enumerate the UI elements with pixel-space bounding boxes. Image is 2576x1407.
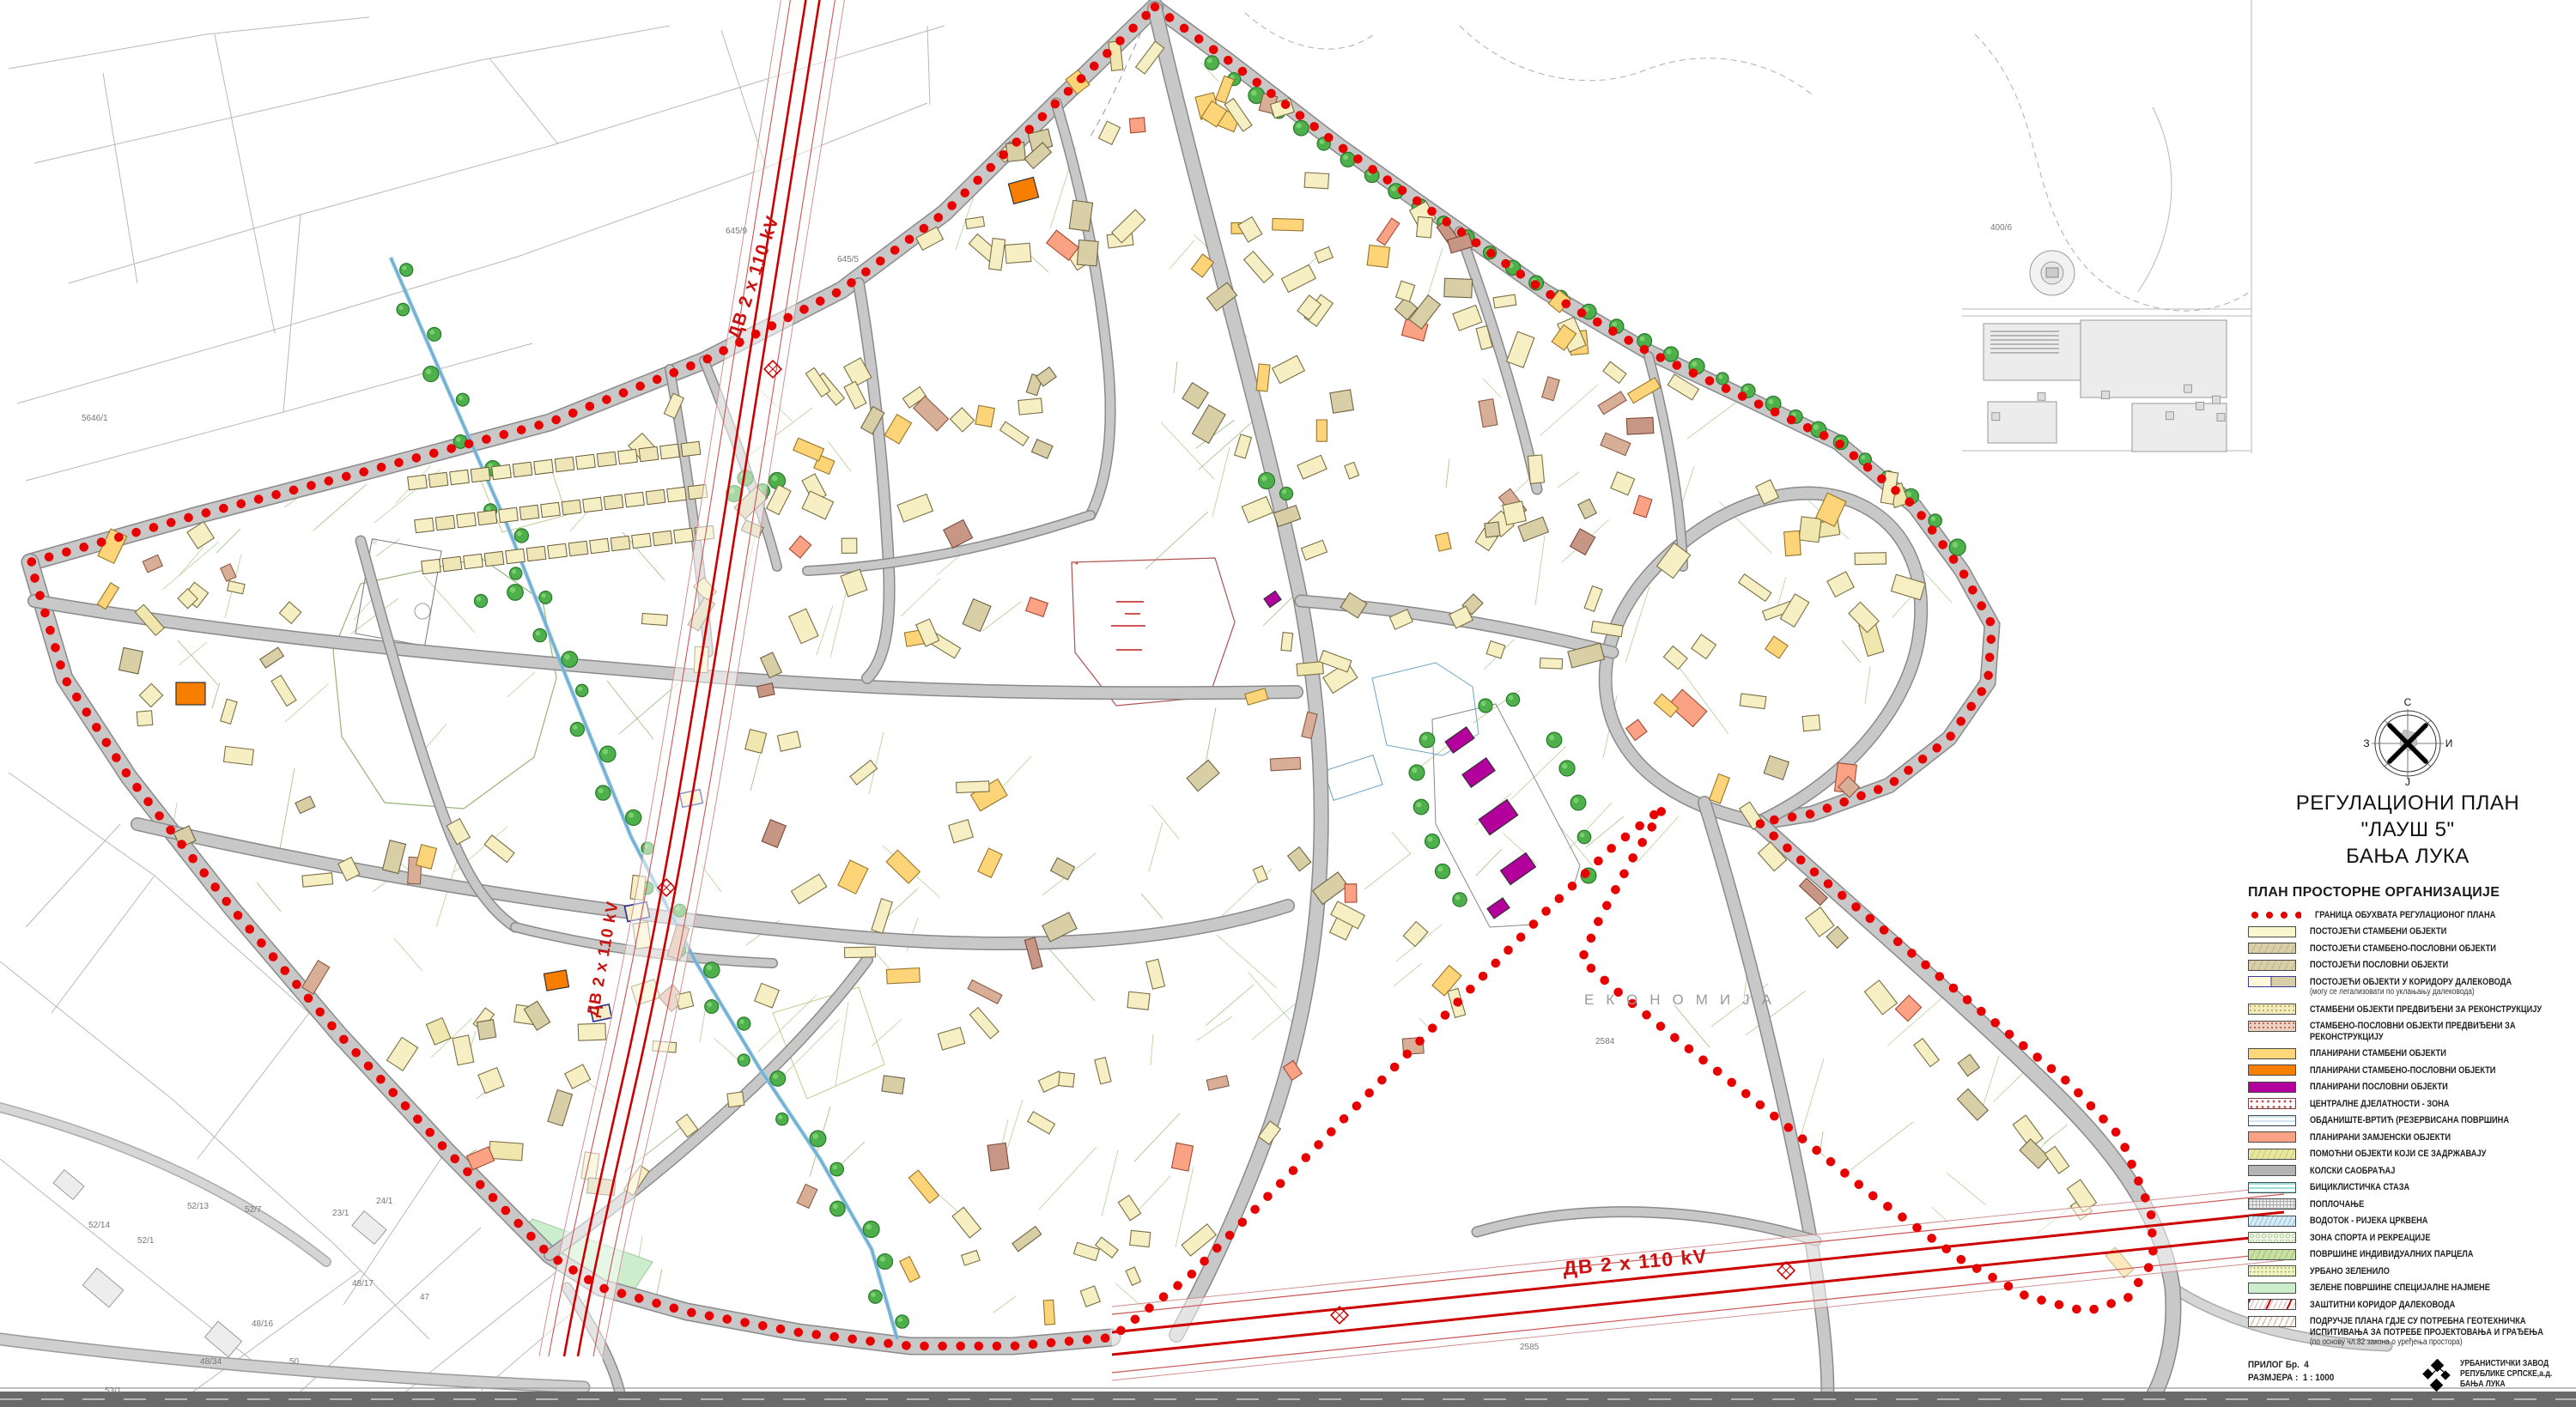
- legend-swatch-cream: [2248, 926, 2296, 937]
- parcel-number: 400/6: [1990, 223, 2012, 233]
- legend-swatch-aux: [2248, 1149, 2296, 1160]
- legend-label: ГРАНИЦА ОБУХВАТА РЕГУЛАЦИОНОГ ПЛАНА: [2315, 910, 2495, 921]
- parcel-number: 48/34: [200, 1357, 222, 1367]
- compass-south-label: Ј: [2405, 776, 2410, 786]
- legend-label: БИЦИКЛИСТИЧКА СТАЗА: [2310, 1182, 2409, 1193]
- legend-label: СТАМБЕНО-ПОСЛОВНИ ОБЈЕКТИ ПРЕДВИЂЕНИ ЗАР…: [2310, 1021, 2516, 1042]
- legend-swatch-boundary: [2248, 911, 2301, 919]
- legend-swatch-road: [2248, 1165, 2296, 1176]
- legend-swatch-urban: [2248, 1265, 2296, 1277]
- legend-label: ВОДОТОК - РИЈЕКА ЦРКВЕНА: [2310, 1216, 2427, 1227]
- parcel-number: 645/5: [837, 255, 859, 264]
- legend-item-9: ПЛАНИРАНИ ПОСЛОВНИ ОБЈЕКТИ: [2248, 1082, 2567, 1093]
- legend-swatch-sport: [2248, 1232, 2296, 1243]
- parcel-number: 23/1: [332, 1209, 349, 1218]
- legend-item-18: ЗОНА СПОРТА И РЕКРЕАЦИЈЕ: [2248, 1232, 2567, 1243]
- legend-label: СТАМБЕНИ ОБЈЕКТИ ПРЕДВИЂЕНИ ЗА РЕКОНСТРУ…: [2310, 1004, 2542, 1016]
- legend-item-11: ОБДАНИШТЕ-ВРТИЋ (РЕЗЕРВИСАНА ПОВРШИНА: [2248, 1115, 2567, 1126]
- compass-north-label: С: [2404, 697, 2412, 708]
- legend-item-5: СТАМБЕНИ ОБЈЕКТИ ПРЕДВИЂЕНИ ЗА РЕКОНСТРУ…: [2248, 1004, 2567, 1015]
- legend-label: ПОСТОЈЕЋИ ПОСЛОВНИ ОБЈЕКТИ: [2310, 960, 2448, 971]
- parcel-number: 52/1: [137, 1236, 155, 1246]
- legend-label: ЗАШТИТНИ КОРИДОР ДАЛЕКОВОДА: [2310, 1300, 2455, 1311]
- legend-swatch-tanhatch: [2248, 960, 2296, 971]
- legend-item-3: ПОСТОЈЕЋИ ПОСЛОВНИ ОБЈЕКТИ: [2248, 960, 2567, 971]
- legend-label: ПОСТОЈЕЋИ СТАМБЕНИ ОБЈЕКТИ: [2310, 926, 2446, 937]
- legend-label: ПОДРУЧЈЕ ПЛАНА ГДЈЕ СУ ПОТРЕБНА ГЕОТЕХНИ…: [2310, 1316, 2543, 1349]
- legend-item-15: БИЦИКЛИСТИЧКА СТАЗА: [2248, 1182, 2567, 1193]
- economija-label: ЕКОНОМИЈА: [1584, 992, 1783, 1008]
- plan-title-line1: РЕГУЛАЦИОНИ ПЛАН: [2248, 790, 2567, 816]
- legend-swatch-central: [2248, 1098, 2296, 1109]
- legend-swatch-parcel: [2248, 1249, 2296, 1260]
- legend-label: ПОМОЋНИ ОБЈЕКТИ КОЈИ СЕ ЗАДРЖАВАЈУ: [2310, 1149, 2486, 1160]
- legend-swatch-pave: [2248, 1198, 2296, 1210]
- legend-swatch-mint: [2248, 1283, 2296, 1294]
- map-footer: ПРИЛОГ Бр. 4 РАЗМЈЕРА : 1 : 1000 УРБАНИС…: [2248, 1359, 2567, 1393]
- parcel-number: 48/16: [252, 1319, 273, 1329]
- plan-map: ДВ 2 x 110 kVДВ 2 x 110 kVДВ 2 x 110 kVЕ…: [0, 0, 2576, 1407]
- legend-label: ПЛАНИРАНИ СТАМБЕНИ ОБЈЕКТИ: [2310, 1048, 2446, 1059]
- plan-map-svg: ДВ 2 x 110 kVДВ 2 x 110 kVДВ 2 x 110 kVЕ…: [0, 0, 2576, 1407]
- legend-item-0: ГРАНИЦА ОБУХВАТА РЕГУЛАЦИОНОГ ПЛАНА: [2248, 909, 2567, 920]
- plan-title-line3: БАЊА ЛУКА: [2248, 843, 2567, 870]
- compass-rose: С Ј З И: [2363, 697, 2452, 786]
- legend-item-20: УРБАНО ЗЕЛЕНИЛО: [2248, 1265, 2567, 1277]
- legend-swatch-tanhatch: [2248, 943, 2296, 954]
- parcel-number: 53/1: [105, 1386, 122, 1396]
- legend-swatch-water: [2248, 1216, 2296, 1227]
- legend-swatch-reconmix: [2248, 1021, 2296, 1032]
- legend-swatch-reconres: [2248, 1004, 2296, 1015]
- parcel-number: 645/9: [726, 227, 747, 236]
- legend-item-16: ПОПЛОЧАЊЕ: [2248, 1198, 2567, 1210]
- legend-item-22: ЗАШТИТНИ КОРИДОР ДАЛЕКОВОДА: [2248, 1299, 2567, 1310]
- legend-label: ПЛАНИРАНИ СТАМБЕНО-ПОСЛОВНИ ОБЈЕКТИ: [2310, 1065, 2495, 1076]
- legend-swatch-dvcorr: [2248, 1299, 2296, 1310]
- legend-heading: ПЛАН ПРОСТОРНЕ ОРГАНИЗАЦИЈЕ: [2248, 885, 2567, 901]
- parcel-number: 2585: [1520, 1343, 1540, 1352]
- parcel-number: 52/14: [88, 1221, 110, 1230]
- legend-label: ПЛАНИРАНИ ЗАМЈЕНСКИ ОБЈЕКТИ: [2310, 1132, 2451, 1143]
- legend-label: ОБДАНИШТЕ-ВРТИЋ (РЕЗЕРВИСАНА ПОВРШИНА: [2310, 1115, 2509, 1126]
- legend-label: КОЛСКИ САОБРАЋАЈ: [2310, 1166, 2395, 1177]
- legend-swatch-salmon: [2248, 1131, 2296, 1143]
- footer-organization: УРБАНИСТИЧКИ ЗАВОД РЕПУБЛИКЕ СРПСКЕ,а.д.…: [2460, 1359, 2552, 1390]
- legend-item-21: ЗЕЛЕНЕ ПОВРШИНЕ СПЕЦИЈАЛНЕ НАЈМЕНЕ: [2248, 1283, 2567, 1294]
- legend-item-8: ПЛАНИРАНИ СТАМБЕНО-ПОСЛОВНИ ОБЈЕКТИ: [2248, 1064, 2567, 1076]
- legend-swatch-magenta: [2248, 1082, 2296, 1093]
- legend-item-17: ВОДОТОК - РИЈЕКА ЦРКВЕНА: [2248, 1216, 2567, 1227]
- uzrs-logo-icon: [2421, 1359, 2453, 1393]
- legend-label: УРБАНО ЗЕЛЕНИЛО: [2310, 1266, 2390, 1277]
- legend-label: ЗЕЛЕНЕ ПОВРШИНЕ СПЕЦИЈАЛНЕ НАЈМЕНЕ: [2310, 1283, 2490, 1294]
- parcel-number: 5646/1: [82, 414, 108, 423]
- legend-item-2: ПОСТОЈЕЋИ СТАМБЕНО-ПОСЛОВНИ ОБЈЕКТИ: [2248, 943, 2567, 954]
- legend-item-6: СТАМБЕНО-ПОСЛОВНИ ОБЈЕКТИ ПРЕДВИЂЕНИ ЗАР…: [2248, 1021, 2567, 1043]
- plan-title-line2: "ЛАУШ 5": [2248, 816, 2567, 843]
- legend-item-10: ЦЕНТРАЛНЕ ДЈЕЛАТНОСТИ - ЗОНА: [2248, 1098, 2567, 1109]
- legend: ГРАНИЦА ОБУХВАТА РЕГУЛАЦИОНОГ ПЛАНАПОСТО…: [2248, 909, 2567, 1349]
- compass-west-label: З: [2363, 737, 2369, 749]
- legend-label: ПОСТОЈЕЋИ СТАМБЕНО-ПОСЛОВНИ ОБЈЕКТИ: [2310, 943, 2496, 955]
- parcel-number: 48/17: [352, 1279, 374, 1289]
- legend-item-13: ПОМОЋНИ ОБЈЕКТИ КОЈИ СЕ ЗАДРЖАВАЈУ: [2248, 1149, 2567, 1160]
- title-block: С Ј З И РЕГУЛАЦИОНИ ПЛАН "ЛАУШ 5" БАЊА Л…: [2248, 697, 2567, 1393]
- legend-item-19: ПОВРШИНЕ ИНДИВИДУАЛНИХ ПАРЦЕЛА: [2248, 1249, 2567, 1260]
- legend-item-7: ПЛАНИРАНИ СТАМБЕНИ ОБЈЕКТИ: [2248, 1048, 2567, 1059]
- parcel-number: 24/1: [376, 1197, 393, 1206]
- legend-swatch-geo: [2248, 1316, 2296, 1327]
- legend-item-1: ПОСТОЈЕЋИ СТАМБЕНИ ОБЈЕКТИ: [2248, 926, 2567, 937]
- legend-label: ЗОНА СПОРТА И РЕКРЕАЦИЈЕ: [2310, 1233, 2430, 1244]
- parcel-number: 52/13: [187, 1202, 209, 1211]
- parcel-number: 50: [289, 1357, 300, 1367]
- legend-label: ПЛАНИРАНИ ПОСЛОВНИ ОБЈЕКТИ: [2310, 1082, 2448, 1093]
- parcel-number: 47: [420, 1293, 430, 1302]
- legend-label: ЦЕНТРАЛНЕ ДЈЕЛАТНОСТИ - ЗОНА: [2310, 1099, 2449, 1110]
- legend-item-4: ПОСТОЈЕЋИ ОБЈЕКТИ У КОРИДОРУ ДАЛЕКОВОДА(…: [2248, 976, 2567, 998]
- legend-label: ПОВРШИНЕ ИНДИВИДУАЛНИХ ПАРЦЕЛА: [2310, 1249, 2473, 1260]
- legend-item-23: ПОДРУЧЈЕ ПЛАНА ГДЈЕ СУ ПОТРЕБНА ГЕОТЕХНИ…: [2248, 1316, 2567, 1349]
- parcel-number: 2584: [1595, 1037, 1615, 1046]
- legend-swatch-orange: [2248, 1064, 2296, 1076]
- legend-swatch-corridorsplit: [2248, 976, 2296, 987]
- legend-swatch-gold: [2248, 1048, 2296, 1059]
- legend-item-12: ПЛАНИРАНИ ЗАМЈЕНСКИ ОБЈЕКТИ: [2248, 1131, 2567, 1143]
- legend-swatch-bike: [2248, 1182, 2296, 1193]
- legend-label: ПОСТОЈЕЋИ ОБЈЕКТИ У КОРИДОРУ ДАЛЕКОВОДА(…: [2310, 977, 2512, 998]
- legend-label: ПОПЛОЧАЊЕ: [2310, 1199, 2364, 1210]
- legend-item-14: КОЛСКИ САОБРАЋАЈ: [2248, 1165, 2567, 1176]
- legend-swatch-kinder: [2248, 1115, 2296, 1126]
- footer-attachment-scale: ПРИЛОГ Бр. 4 РАЗМЈЕРА : 1 : 1000: [2248, 1359, 2334, 1385]
- compass-east-label: И: [2445, 737, 2452, 749]
- parcel-number: 52/7: [245, 1205, 262, 1215]
